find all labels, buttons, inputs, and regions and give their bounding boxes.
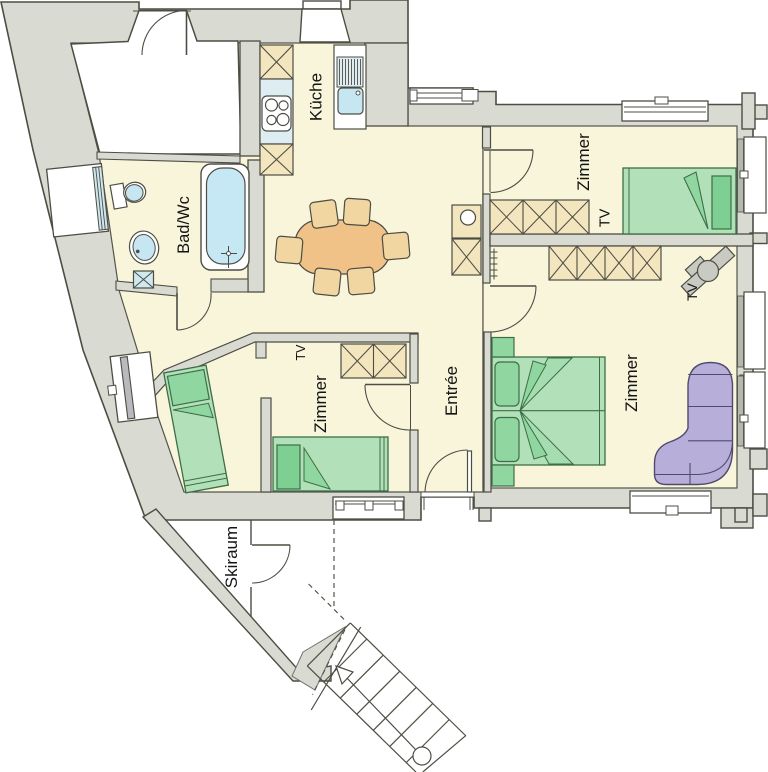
- svg-text:Zimmer: Zimmer: [622, 354, 641, 412]
- svg-text:TV: TV: [598, 208, 614, 227]
- svg-text:TV: TV: [684, 282, 700, 301]
- svg-text:Zimmer: Zimmer: [311, 375, 330, 433]
- svg-text:TV: TV: [294, 344, 308, 361]
- svg-text:Bad/Wc: Bad/Wc: [175, 196, 193, 254]
- svg-text:Zimmer: Zimmer: [574, 133, 593, 191]
- svg-text:Entrée: Entrée: [442, 366, 461, 416]
- svg-text:Küche: Küche: [307, 73, 326, 121]
- svg-text:Skiraum: Skiraum: [222, 526, 241, 588]
